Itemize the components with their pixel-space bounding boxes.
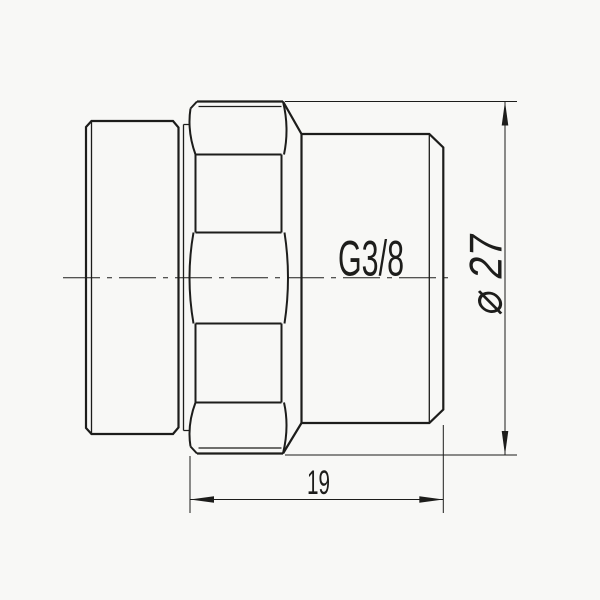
technical-drawing-canvas: ⌀ 27 19 G3/8 [0,0,600,600]
hex-face-lines [196,155,282,403]
dim-arrow-left-icon [190,496,214,503]
hex-side-edges [196,155,282,403]
dim-arrow-right-icon [419,496,443,503]
thread-label: G3/8 [338,231,404,287]
length-label: 19 [307,464,330,502]
dim-arrow-down-icon [502,431,509,455]
dim-arrow-up-icon [502,102,509,126]
drawing-svg: ⌀ 27 19 G3/8 [0,0,600,600]
dimension-length: 19 [190,425,443,513]
diameter-label: ⌀ 27 [460,230,512,317]
